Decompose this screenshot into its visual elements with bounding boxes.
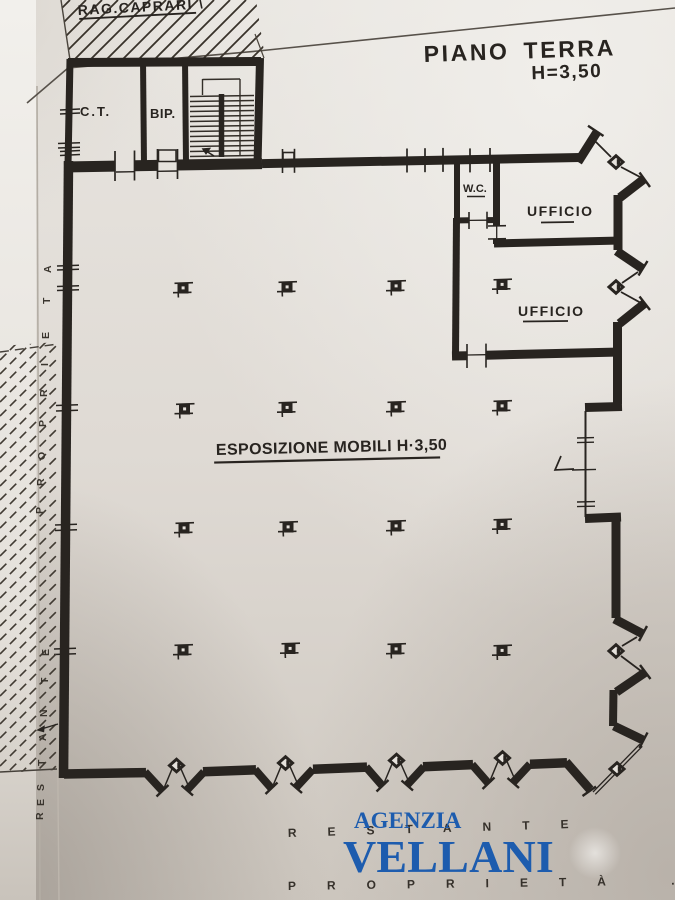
svg-text:UFFICIO: UFFICIO	[518, 303, 585, 319]
svg-text:E: E	[40, 332, 52, 339]
svg-text:T: T	[36, 759, 48, 766]
svg-text:C.T.: C.T.	[80, 104, 111, 119]
svg-text:P: P	[37, 420, 49, 427]
svg-text:I: I	[39, 363, 51, 366]
svg-text:BIP.: BIP.	[150, 106, 176, 121]
svg-text:E: E	[40, 649, 52, 656]
svg-text:AGENZIA: AGENZIA	[354, 808, 462, 833]
svg-text:UFFICIO: UFFICIO	[527, 203, 594, 219]
svg-text:T: T	[41, 297, 53, 304]
svg-text:T: T	[39, 677, 51, 684]
svg-text:A: A	[42, 265, 54, 273]
svg-text:P: P	[34, 507, 46, 514]
svg-text:R: R	[35, 478, 47, 486]
svg-text:E: E	[35, 799, 47, 806]
svg-text:VELLANI: VELLANI	[343, 831, 554, 882]
svg-text:R: R	[34, 812, 46, 820]
svg-text:W.C.: W.C.	[463, 183, 487, 195]
svg-text:H=3,50: H=3,50	[531, 61, 602, 84]
svg-text:R: R	[38, 389, 50, 397]
svg-text:N: N	[38, 709, 50, 717]
svg-text:O: O	[36, 452, 48, 460]
svg-text:A: A	[37, 733, 49, 741]
svg-text:S: S	[35, 784, 47, 791]
